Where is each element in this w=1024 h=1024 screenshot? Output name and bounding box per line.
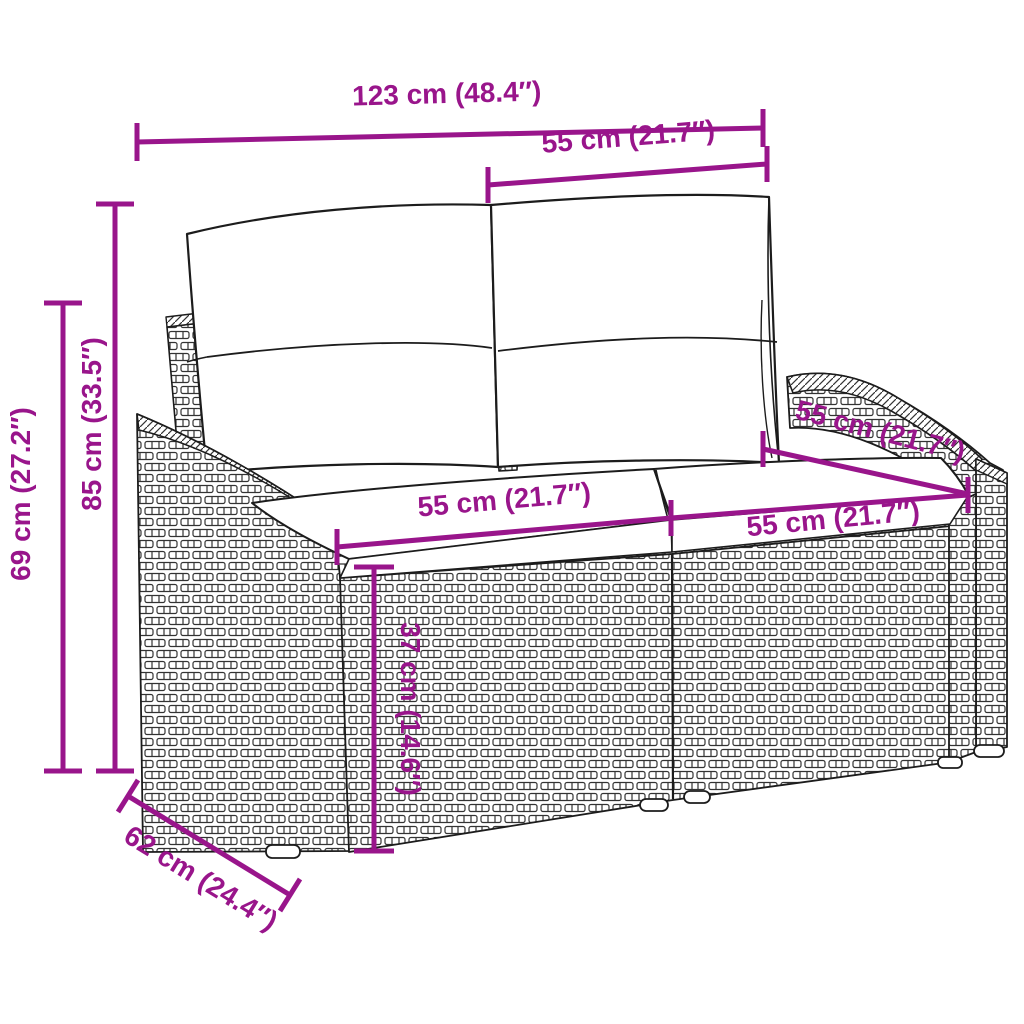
product-dimension-diagram: 123 cm (48.4″) 55 cm (21.7″) 85 cm (33.5…: [0, 0, 1024, 1024]
sofa-dimension-drawing: 123 cm (48.4″) 55 cm (21.7″) 85 cm (33.5…: [0, 0, 1024, 1024]
sofa-foot: [266, 845, 300, 858]
dimension-armrest-height: 69 cm (27.2″): [5, 303, 82, 771]
overall-height-label: 85 cm (33.5″): [76, 337, 107, 511]
dimension-overall-height: 85 cm (33.5″): [76, 204, 134, 771]
overall-width-label: 123 cm (48.4″): [352, 76, 542, 112]
right-back-cushion: [491, 195, 779, 467]
left-back-cushion: [187, 204, 498, 473]
left-armrest: [137, 414, 352, 852]
sofa-foot: [640, 799, 668, 811]
sofa-foot: [684, 791, 710, 803]
armrest-height-label: 69 cm (27.2″): [5, 407, 36, 581]
sofa-foot: [974, 745, 1004, 757]
seat-height-label: 37 cm (14.6″): [395, 622, 426, 796]
sofa-foot: [938, 757, 962, 768]
back-section-width-label: 55 cm (21.7″): [540, 114, 716, 159]
